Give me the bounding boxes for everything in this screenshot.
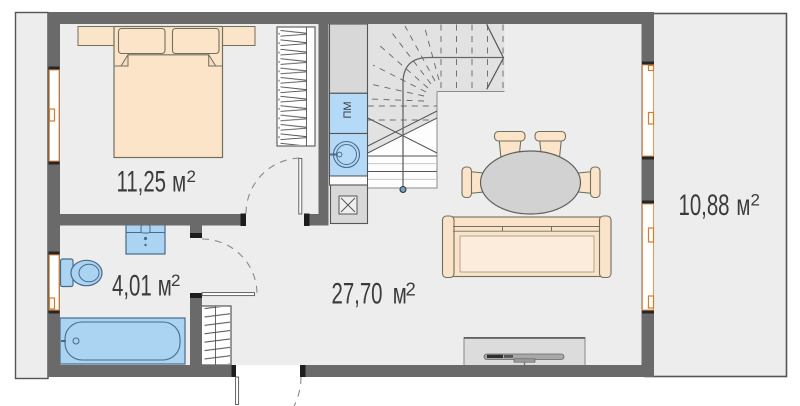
svg-text:27,70м: 27,70м [332,278,407,311]
svg-text:10,88м: 10,88м [679,189,751,222]
svg-text:ПМ: ПМ [342,101,354,118]
svg-text:2: 2 [187,167,196,186]
svg-text:2: 2 [171,271,180,290]
svg-text:11,25м: 11,25м [117,166,187,199]
svg-text:4,01м: 4,01м [112,270,172,303]
svg-text:2: 2 [751,191,760,210]
svg-text:2: 2 [406,279,416,300]
